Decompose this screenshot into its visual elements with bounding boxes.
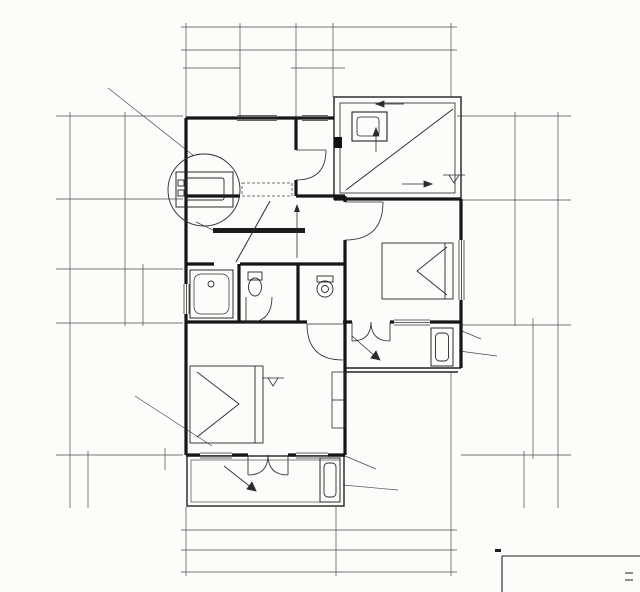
floor-plan-drawing (0, 0, 640, 592)
drawing-title-block (495, 522, 501, 546)
axis-and-dim-lines (56, 23, 571, 576)
ac-outdoor-unit (320, 458, 340, 502)
basin (317, 281, 333, 297)
floor-plan-sheet (0, 0, 640, 592)
drawing-title (495, 522, 501, 552)
parapet-lines (187, 97, 640, 592)
level-symbols (262, 175, 465, 386)
walls (186, 118, 461, 455)
stair-parts (213, 201, 305, 262)
title-block-border (502, 556, 640, 592)
bathtub (190, 270, 233, 318)
leader-lines (108, 88, 497, 490)
window-symbols (184, 116, 464, 459)
toilet (249, 278, 262, 296)
dashed-cabinet (242, 183, 292, 196)
ac-outdoor-unit (431, 328, 453, 366)
chimney (334, 112, 387, 148)
fixtures (168, 154, 453, 502)
bed (190, 366, 263, 443)
